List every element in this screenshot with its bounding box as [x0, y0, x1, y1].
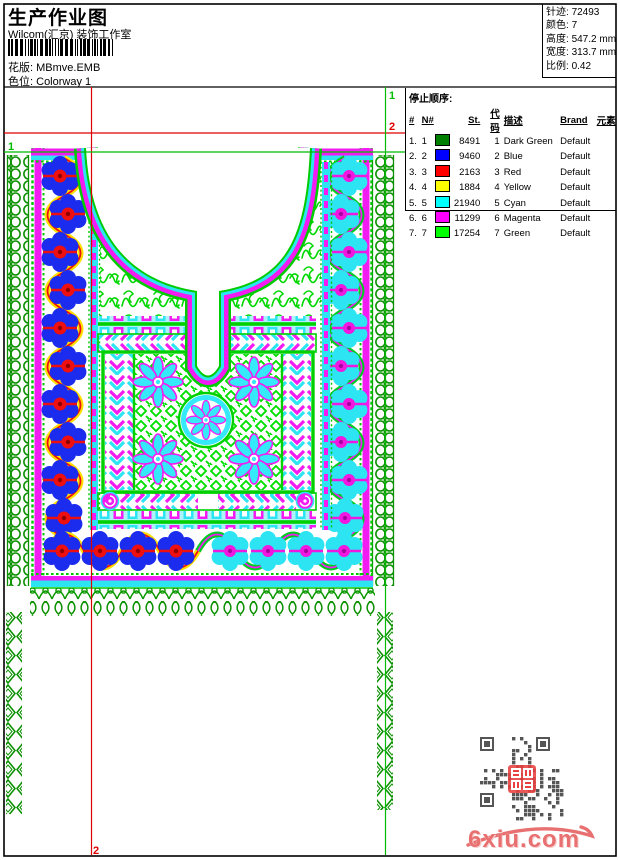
col-brand: Brand — [560, 106, 597, 134]
chevron-band-top — [98, 334, 316, 352]
registration-label-1-left: 1 — [8, 141, 14, 153]
color-swatch — [435, 134, 450, 146]
color-stop-table: 停止顺序: # N# St. 代码 描述 Brand 元素 1.1 84911 … — [405, 88, 616, 211]
qr-code-icon — [480, 737, 563, 820]
col-stitches: St. — [451, 106, 483, 134]
stat-scale: 比例: 0.42 — [546, 60, 616, 73]
table-header-row: # N# St. 代码 描述 Brand 元素 — [409, 106, 616, 134]
strip-inner-borders — [89, 162, 332, 530]
panel-flower — [133, 434, 183, 484]
fringe-lace-row — [30, 588, 375, 603]
registration-label-2-bottom: 2 — [93, 845, 99, 857]
table-row: 7.7 172547 GreenDefault — [409, 226, 616, 241]
panel-chevron-column-left — [105, 354, 133, 490]
chain-border-left — [7, 155, 29, 586]
color-swatch — [435, 196, 450, 208]
stop-sequence-title: 停止顺序: — [409, 90, 616, 105]
col-element: 元素 — [597, 106, 616, 134]
design-stats-box: 针迹: 72493 颜色: 7 高度: 547.2 mm 宽度: 313.7 m… — [542, 4, 616, 78]
color-swatch — [435, 180, 450, 192]
vermicelli-fill — [100, 162, 321, 316]
col-needle: N# — [422, 106, 435, 134]
right-flower-strip — [323, 156, 368, 538]
fringe-teardrop-row — [30, 601, 375, 616]
neckline — [86, 148, 310, 376]
registration-label-1-top: 1 — [389, 90, 395, 102]
qr-seal — [508, 765, 536, 793]
center-medallion — [179, 393, 233, 447]
stat-height: 高度: 547.2 mm — [546, 33, 616, 46]
table-row: 5.5 219405 CyanDefault — [409, 196, 616, 211]
blocks-band-bottom — [98, 511, 316, 529]
watermark-site: 6xiu.com — [468, 826, 598, 854]
color-swatch — [435, 211, 450, 223]
panel-flower — [229, 357, 279, 407]
stat-width: 宽度: 313.7 mm — [546, 46, 616, 59]
tail-right — [377, 612, 393, 810]
tail-left — [6, 612, 22, 814]
panel-flower — [133, 357, 183, 407]
table-row: 4.4 18844 YellowDefault — [409, 180, 616, 195]
colorway-label: 色位: — [8, 76, 33, 88]
colorway-line: 色位: Colorway 1 — [8, 73, 91, 89]
registration-label-2-right: 2 — [389, 121, 395, 133]
color-swatch — [435, 226, 450, 238]
table-row: 3.3 21633 RedDefault — [409, 165, 616, 180]
table-row: 6.6 112996 MagentaDefault — [409, 211, 616, 226]
rose-motif — [102, 493, 119, 510]
chain-border-right — [372, 155, 394, 586]
chevron-band-bottom — [98, 493, 316, 511]
table-row: 1.1 84911 Dark GreenDefault — [409, 134, 616, 149]
col-hash: # — [409, 106, 422, 134]
blocks-band-top — [98, 316, 316, 334]
left-flower-strip — [42, 156, 87, 538]
stat-colors: 颜色: 7 — [546, 19, 616, 32]
col-desc: 描述 — [504, 106, 560, 134]
color-swatch — [435, 149, 450, 161]
panel-lattice-fill — [135, 354, 281, 490]
production-worksheet: { "header": { "title": "生产作业图", "company… — [0, 0, 620, 860]
panel-chevron-column-right — [283, 354, 311, 490]
central-panel — [103, 352, 313, 492]
registration-lines: 1 2 1 2 — [4, 87, 405, 857]
company-name: Wilcom(汇京) 装饰工作室 — [8, 26, 131, 42]
colorway-value: Colorway 1 — [36, 76, 91, 88]
embroidery-artwork — [6, 148, 394, 814]
panel-flower — [229, 434, 279, 484]
color-swatch — [435, 165, 450, 177]
table-row: 2.2 94602 BlueDefault — [409, 149, 616, 164]
rose-motif — [297, 493, 314, 510]
col-code: 代码 — [483, 106, 503, 134]
bottom-flower-row — [44, 531, 363, 571]
yoke-border-bands — [31, 148, 373, 586]
stat-stitches: 针迹: 72493 — [546, 6, 616, 19]
bottom-edge-bands — [31, 574, 373, 588]
